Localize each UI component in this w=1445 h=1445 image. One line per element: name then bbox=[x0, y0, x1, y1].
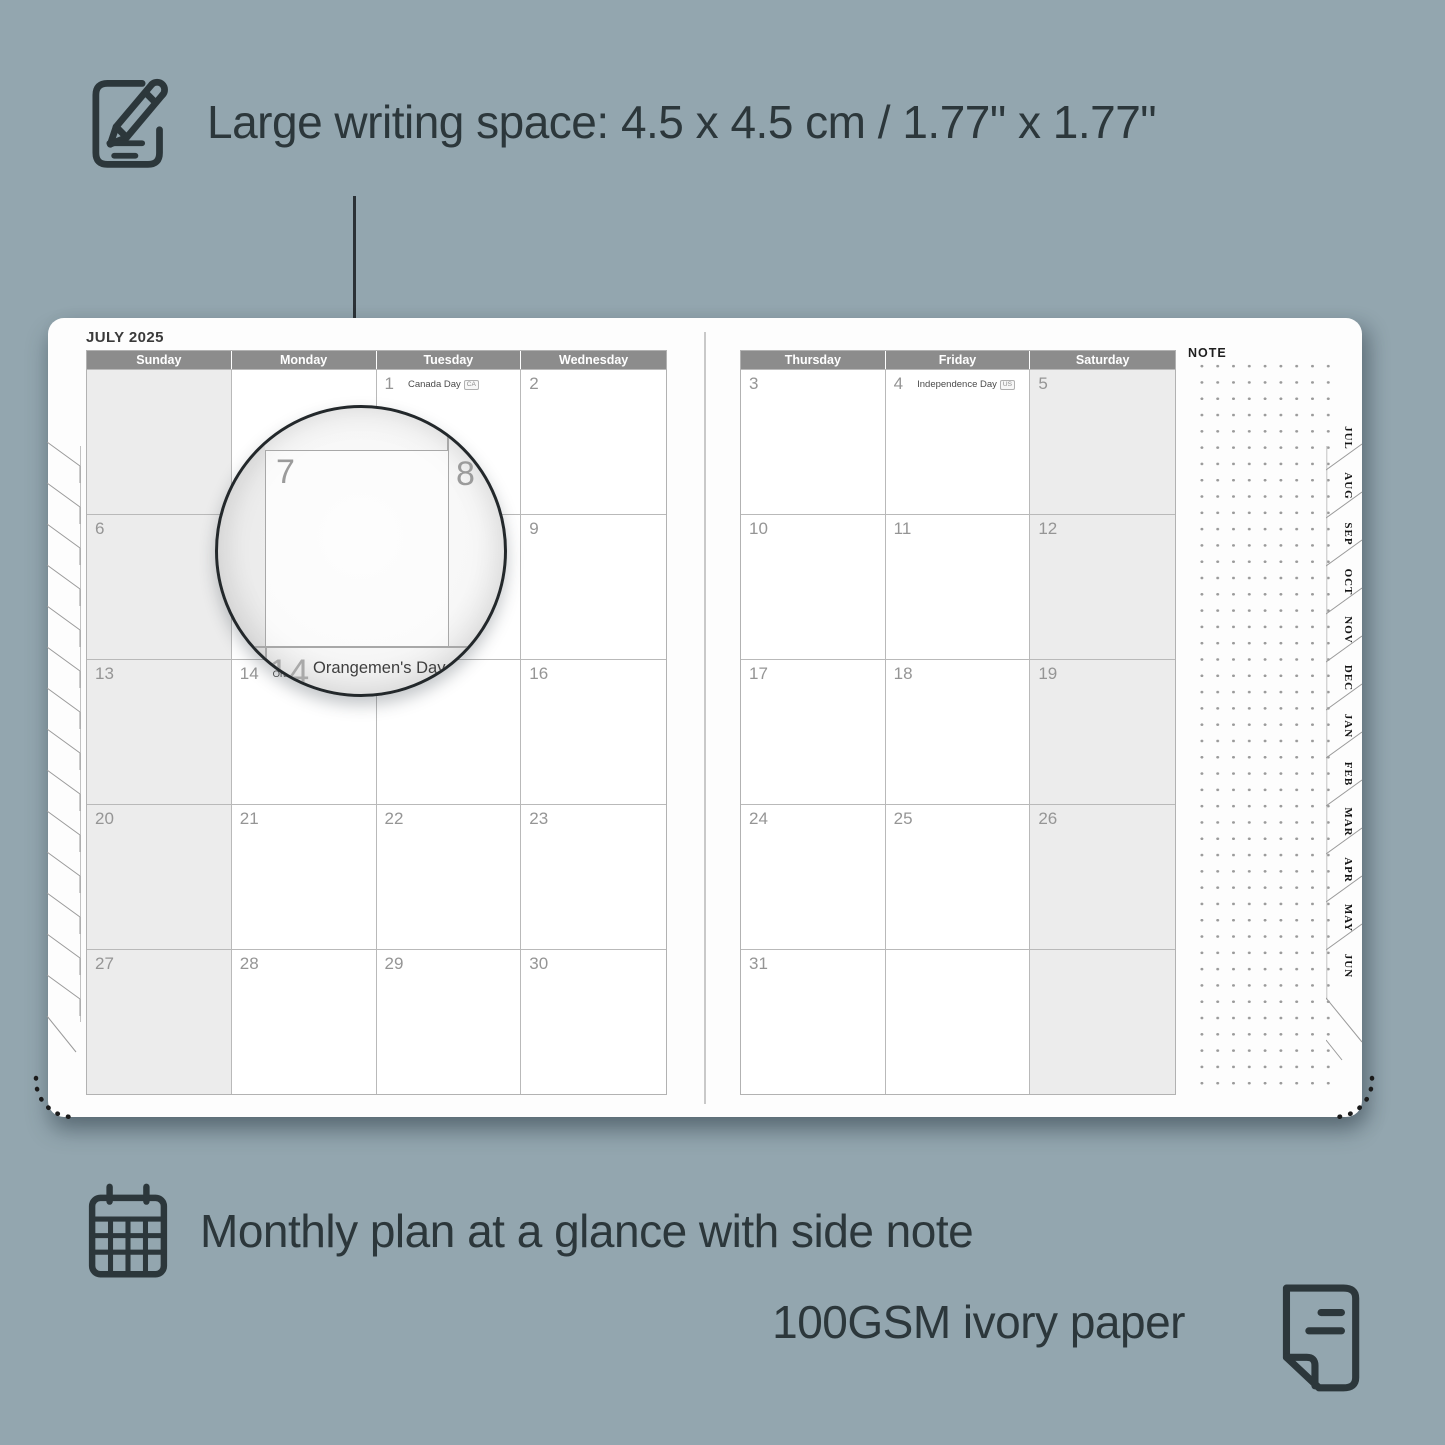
calendar-grid-right: ThursdayFridaySaturday34Independence Day… bbox=[740, 350, 1176, 1095]
day-header: Sunday bbox=[87, 351, 232, 369]
day-number: 20 bbox=[95, 810, 114, 828]
day-number: 29 bbox=[385, 955, 404, 973]
month-tab: OCT bbox=[1342, 569, 1354, 596]
month-tab: MAR bbox=[1342, 807, 1354, 836]
calendar-cell: 6 bbox=[87, 514, 232, 659]
magnified-grid-line bbox=[218, 646, 504, 648]
month-tab: SEP bbox=[1342, 522, 1354, 545]
note-dot-grid bbox=[1190, 352, 1332, 1092]
calendar-cell: 20 bbox=[87, 804, 232, 949]
day-number: 11 bbox=[894, 520, 912, 538]
month-tab: FEB bbox=[1342, 762, 1354, 786]
country-badge: US bbox=[1000, 380, 1015, 390]
calendar-cell: 12 bbox=[1030, 514, 1175, 659]
calendar-cell bbox=[1030, 949, 1175, 1094]
calendar-cell: 22 bbox=[377, 804, 522, 949]
calendar-cell: 21 bbox=[232, 804, 377, 949]
magnified-day-number: 14 bbox=[268, 654, 309, 691]
calendar-grid-icon bbox=[82, 1182, 174, 1280]
day-number: 3 bbox=[749, 375, 758, 393]
month-tab: NOV bbox=[1342, 616, 1354, 643]
calendar-cell: 29 bbox=[377, 949, 522, 1094]
calendar-cell: 3 bbox=[741, 369, 886, 514]
holiday-label: Canada DayCA bbox=[408, 375, 479, 390]
day-number: 17 bbox=[749, 665, 768, 683]
month-tab-strip: JULAUGSEPOCTNOVDECJANFEBMARAPRMAYJUN bbox=[1326, 402, 1364, 1070]
calendar-cell: 4Independence DayUS bbox=[886, 369, 1031, 514]
day-number: 28 bbox=[240, 955, 259, 973]
calendar-cell: 13 bbox=[87, 659, 232, 804]
country-badge: CA bbox=[464, 380, 479, 390]
note-label: NOTE bbox=[1188, 344, 1234, 362]
day-number: 10 bbox=[749, 520, 768, 538]
day-number: 5 bbox=[1038, 375, 1047, 393]
day-header: Saturday bbox=[1030, 351, 1175, 369]
month-tab: JUL bbox=[1342, 426, 1354, 450]
day-number: 2 bbox=[529, 375, 538, 393]
magnified-day-number: 7 bbox=[276, 455, 295, 489]
calendar-cell: 2 bbox=[521, 369, 666, 514]
magnifier-lens: 7 8 14 Orangemen's Day (n.i.)UK bbox=[215, 405, 507, 697]
calendar-cell: 11 bbox=[886, 514, 1031, 659]
day-number: 27 bbox=[95, 955, 114, 973]
top-annotation: Large writing space: 4.5 x 4.5 cm / 1.77… bbox=[84, 68, 1156, 176]
left-page-edge-tabs bbox=[46, 402, 82, 1070]
day-number: 21 bbox=[240, 810, 259, 828]
day-number: 6 bbox=[95, 520, 104, 538]
calendar-cell: 9 bbox=[521, 514, 666, 659]
month-tab: APR bbox=[1342, 857, 1354, 883]
day-number: 19 bbox=[1038, 665, 1057, 683]
calendar-cell: 24 bbox=[741, 804, 886, 949]
day-number: 23 bbox=[529, 810, 548, 828]
day-header: Thursday bbox=[741, 351, 886, 369]
paper-annotation-text: 100GSM ivory paper bbox=[0, 1295, 1185, 1349]
calendar-cell: 17 bbox=[741, 659, 886, 804]
calendar-cell: 31 bbox=[741, 949, 886, 1094]
corner-dotted-arc bbox=[1298, 1062, 1408, 1172]
magnified-day-number: 8 bbox=[456, 457, 475, 491]
day-number: 31 bbox=[749, 955, 768, 973]
paper-icon bbox=[1272, 1282, 1362, 1396]
day-number: 26 bbox=[1038, 810, 1057, 828]
day-header: Monday bbox=[232, 351, 377, 369]
month-tab: DEC bbox=[1342, 665, 1354, 691]
calendar-cell: 23 bbox=[521, 804, 666, 949]
day-number: 25 bbox=[894, 810, 913, 828]
calendar-cell: 19 bbox=[1030, 659, 1175, 804]
top-annotation-text: Large writing space: 4.5 x 4.5 cm / 1.77… bbox=[207, 95, 1156, 149]
page-fold-line bbox=[704, 332, 706, 1104]
day-number: 12 bbox=[1038, 520, 1057, 538]
day-number: 30 bbox=[529, 955, 548, 973]
magnified-grid-line bbox=[265, 647, 267, 694]
day-number: 22 bbox=[385, 810, 404, 828]
day-header: Tuesday bbox=[377, 351, 522, 369]
calendar-cell bbox=[87, 369, 232, 514]
calendar-cell: 10 bbox=[741, 514, 886, 659]
month-tab: AUG bbox=[1342, 472, 1354, 499]
day-number: 4 bbox=[894, 375, 903, 393]
day-number: 24 bbox=[749, 810, 768, 828]
day-number: 13 bbox=[95, 665, 114, 683]
day-header: Friday bbox=[886, 351, 1031, 369]
calendar-cell: 25 bbox=[886, 804, 1031, 949]
bottom-annotation-text: Monthly plan at a glance with side note bbox=[200, 1204, 973, 1258]
calendar-cell bbox=[886, 949, 1031, 1094]
magnified-holiday-label: Orangemen's Day (n.i.)UK bbox=[313, 659, 507, 678]
calendar-cell: 16 bbox=[521, 659, 666, 804]
magnified-grid-line bbox=[447, 408, 449, 450]
month-tab: JAN bbox=[1342, 714, 1354, 738]
note-pencil-icon bbox=[84, 68, 181, 176]
day-number: 1 bbox=[385, 375, 394, 393]
month-tab: JUN bbox=[1342, 954, 1354, 978]
calendar-cell: 28 bbox=[232, 949, 377, 1094]
calendar-cell: 26 bbox=[1030, 804, 1175, 949]
bottom-annotation: Monthly plan at a glance with side note bbox=[82, 1182, 973, 1280]
calendar-cell: 18 bbox=[886, 659, 1031, 804]
corner-dotted-arc bbox=[0, 1062, 110, 1172]
calendar-cell: 30 bbox=[521, 949, 666, 1094]
day-number: 9 bbox=[529, 520, 538, 538]
day-header: Wednesday bbox=[521, 351, 666, 369]
day-number: 16 bbox=[529, 665, 548, 683]
month-title: JULY 2025 bbox=[86, 329, 164, 346]
day-number: 18 bbox=[894, 665, 913, 683]
month-tab: MAY bbox=[1342, 904, 1354, 932]
magnified-weekend-shade bbox=[218, 408, 265, 694]
calendar-cell: 5 bbox=[1030, 369, 1175, 514]
holiday-label: Independence DayUS bbox=[917, 375, 1015, 390]
